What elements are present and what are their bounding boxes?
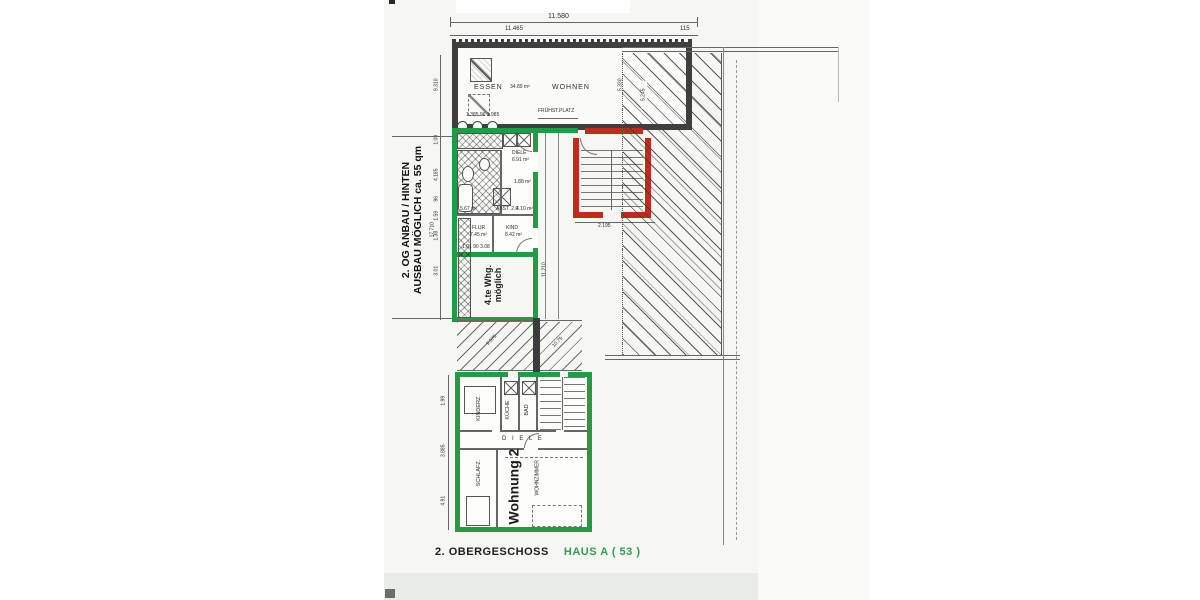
room-label-flur: FLUR — [472, 226, 485, 232]
room-label-bad: BAD — [524, 400, 530, 420]
appliance-box — [504, 381, 518, 395]
boundary-line — [622, 47, 838, 48]
room-label-abst: ABST. 2.0 — [496, 207, 518, 213]
room-label-wohnen: WOHNEN — [552, 84, 590, 92]
paper-bottom-strip — [384, 573, 758, 600]
interior-wall — [536, 377, 538, 432]
dimension-line — [450, 35, 698, 36]
boundary-line — [622, 51, 838, 52]
room-label-essen: ESSEN — [474, 84, 503, 92]
side-annotation-line2: AUSBAU MÖGLICH ca. 55 qm — [413, 135, 425, 305]
floor-caption: 2. OBERGESCHOSS HAUS A ( 53 ) — [435, 546, 641, 558]
chain-label: 9.310 — [434, 72, 440, 98]
label-breakfast-place: FRÜHST.PLATZ — [538, 109, 574, 115]
room-label-schlafz: SCHLAFZ. — [476, 456, 482, 490]
interior-wall — [564, 430, 587, 432]
stair-center-line — [611, 150, 612, 210]
thin-wall — [545, 133, 546, 319]
interior-wall — [457, 214, 533, 216]
interior-wall — [496, 450, 498, 527]
dimension-row-sub: 1.385 96 1.985 — [466, 113, 499, 119]
dimension-chain-line — [448, 375, 449, 530]
side-annotation-dim: 17.710 — [430, 212, 436, 248]
extension-line — [392, 318, 454, 319]
toilet-fixture — [462, 166, 474, 182]
room-label-kinderz: KINDERZ. — [476, 391, 482, 425]
room-area-bath: 1.88 m² — [514, 180, 531, 186]
room-area-abst: 4.10 m² — [516, 207, 533, 213]
fold-crease-line — [736, 60, 737, 540]
scanned-floor-plan-page: 11.580 11.465 115 ESSEN 34.89 m² WOHNEN … — [0, 0, 1200, 600]
paper-bottom-speck — [385, 589, 395, 598]
dimension-label-stairs: 2.195 — [598, 224, 611, 230]
door-gap — [533, 228, 538, 248]
wall-segment — [533, 318, 540, 374]
strip-border — [457, 320, 582, 321]
red-wall-bottom — [573, 212, 603, 218]
red-wall-left — [573, 138, 579, 218]
chain-label: 1.09 — [434, 127, 440, 153]
dimension-tick — [450, 17, 451, 27]
room-label-diele2: D I E L E — [502, 436, 544, 443]
chain-label: 1.99 — [441, 389, 447, 413]
room-label-kind: KIND — [506, 226, 518, 232]
shower-box — [493, 188, 511, 206]
chimney-symbol — [470, 58, 492, 82]
paper-top-speck — [389, 0, 395, 4]
side-annotation-line1: 2. OG ANBAU / HINTEN — [401, 135, 413, 305]
dimension-chain-line — [440, 55, 441, 320]
flat2-name: Wohnung 2 — [507, 450, 523, 525]
appliance-box — [522, 381, 536, 395]
stair-treads — [564, 377, 585, 430]
room-area-diele: 6.91 m² — [512, 158, 529, 164]
green-wall-bottom — [455, 527, 592, 532]
door-gap — [533, 152, 538, 172]
hatched-existing-area — [622, 53, 722, 355]
bed-rect — [466, 496, 490, 526]
dimension-label-hatch: 5.245 — [641, 81, 647, 109]
dimension-line — [538, 118, 578, 119]
hatched-strip — [457, 322, 582, 370]
paper-right-column — [758, 0, 870, 600]
sink-fixture — [479, 158, 490, 171]
building-edge-line — [723, 47, 724, 545]
boundary-line — [605, 355, 740, 356]
chain-label: 3.885 — [441, 439, 447, 463]
kitchen-counter — [457, 133, 503, 149]
dashed-balcony-box — [532, 505, 582, 527]
interior-wall — [500, 150, 502, 214]
floor-caption-green: HAUS A ( 53 ) — [564, 546, 641, 558]
green-wall-right — [587, 372, 592, 532]
room-area-small: 5.67 m² — [460, 207, 477, 213]
strip-border — [457, 370, 582, 371]
interior-wall — [492, 216, 494, 252]
interior-wall — [500, 430, 556, 432]
dimension-tick — [697, 17, 698, 27]
dimension-label-total: 11.580 — [548, 13, 569, 21]
new-flat-note: 4.te Whg. möglich — [484, 248, 510, 322]
chain-label: 3.01 — [434, 258, 440, 284]
interior-wall — [500, 377, 502, 432]
interior-wall — [538, 448, 587, 450]
dimension-label-sub: 11.465 — [505, 26, 523, 33]
room-area-flur: 7.45 m² — [470, 233, 487, 239]
room-area-essen: 34.89 m² — [510, 85, 530, 91]
appliance-box — [503, 133, 517, 147]
extension-line — [392, 136, 454, 137]
new-flat-note-line2: möglich — [494, 248, 504, 322]
room-label-wohnzimmer: WOHNZIMMER — [535, 452, 541, 504]
faint-edge-line — [838, 47, 839, 102]
side-annotation: 2. OG ANBAU / HINTEN AUSBAU MÖGLICH ca. … — [401, 135, 427, 305]
stair-center-line — [562, 377, 563, 430]
room-label-diele: DIELE — [512, 151, 526, 157]
chain-label: 4.185 — [434, 162, 440, 188]
whiteout-box — [456, 0, 630, 13]
stair-treads — [540, 380, 561, 430]
thin-wall — [558, 133, 559, 319]
dimension-label-right: 115 — [680, 26, 690, 33]
boundary-line — [605, 359, 740, 360]
floor-caption-black: 2. OBERGESCHOSS — [435, 546, 549, 558]
chain-label: 4.91 — [441, 489, 447, 513]
room-area-kind: 8.42 m² — [505, 233, 522, 239]
room-label-kueche: KÜCHE — [505, 397, 511, 423]
dimension-line — [450, 22, 698, 23]
interior-wall — [460, 430, 492, 432]
interior-wall — [518, 377, 520, 432]
